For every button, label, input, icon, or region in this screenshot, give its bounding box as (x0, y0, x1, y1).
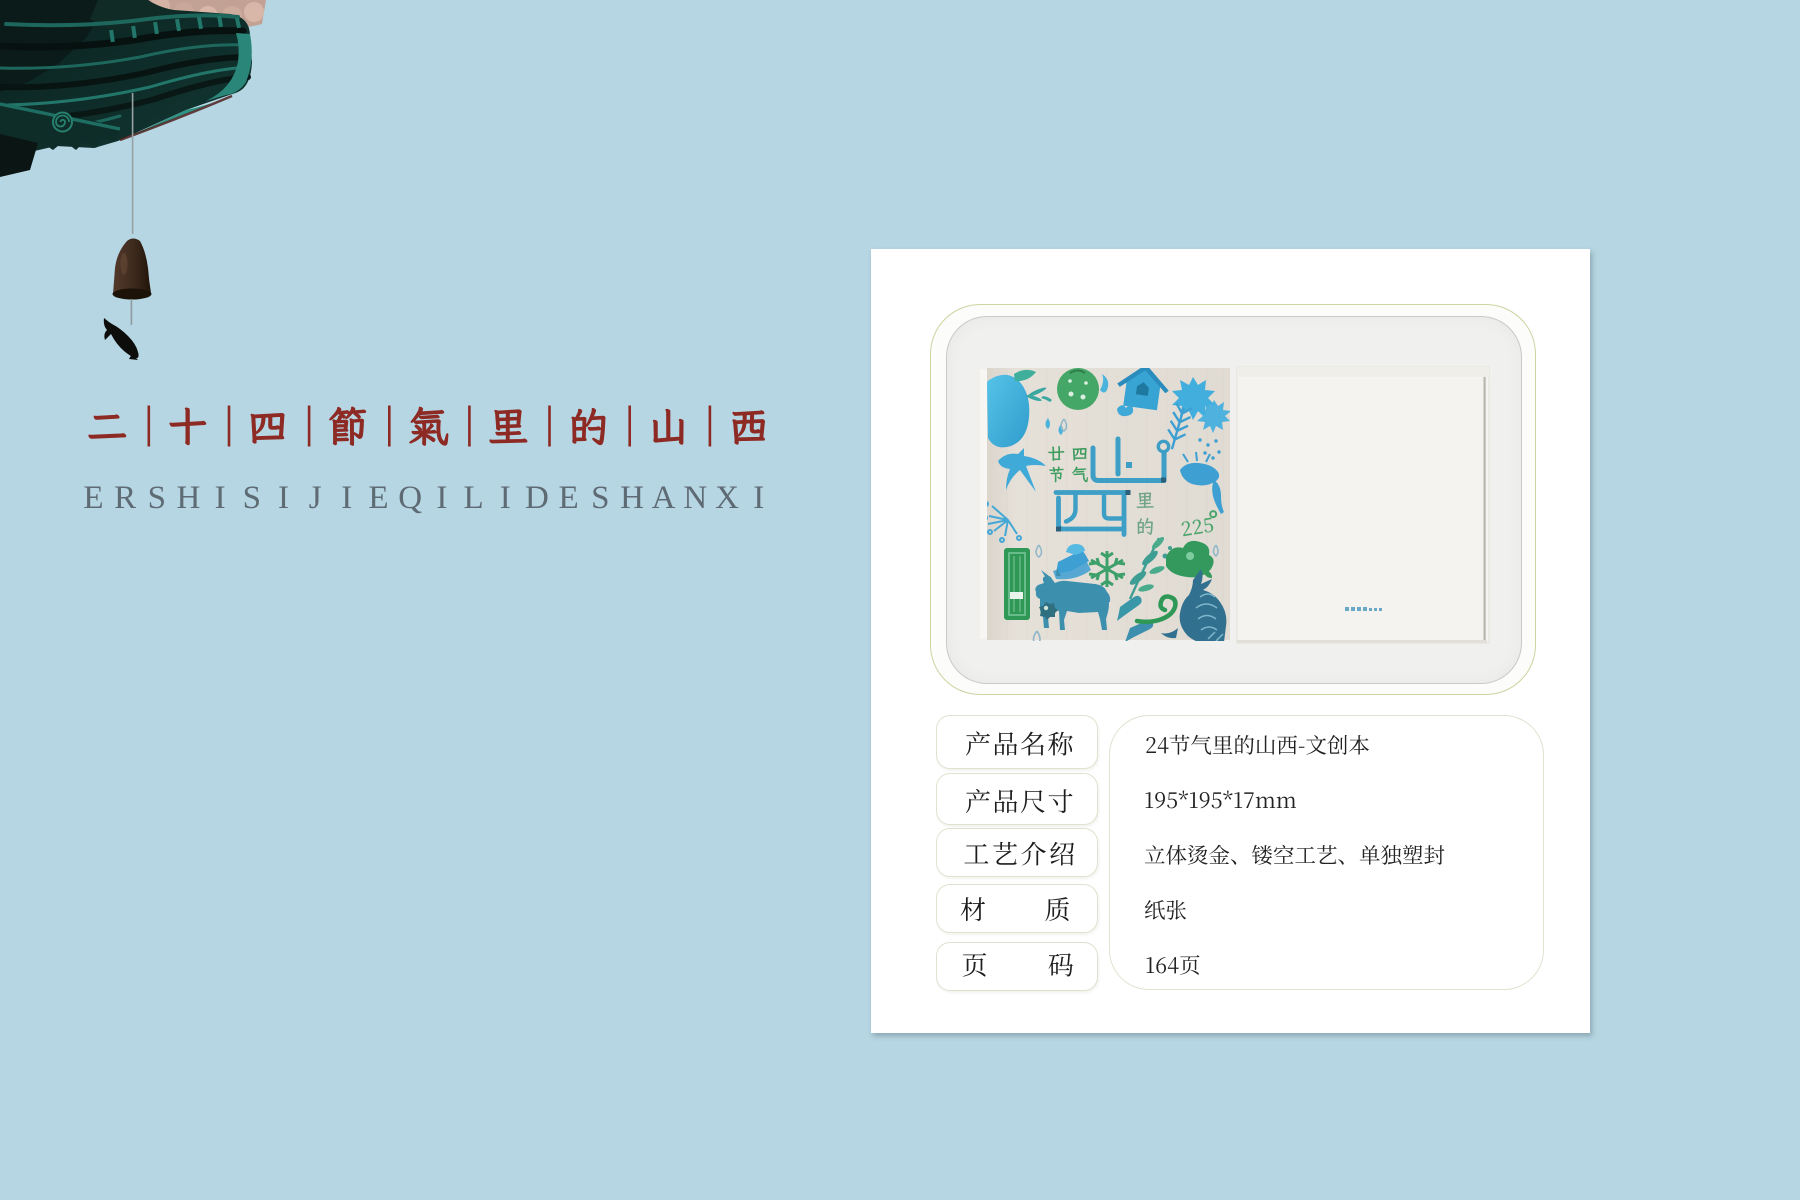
svg-text:ERSHISIJIEQILIDESHANXI: ERSHISIJIEQILIDESHANXI (83, 480, 764, 516)
